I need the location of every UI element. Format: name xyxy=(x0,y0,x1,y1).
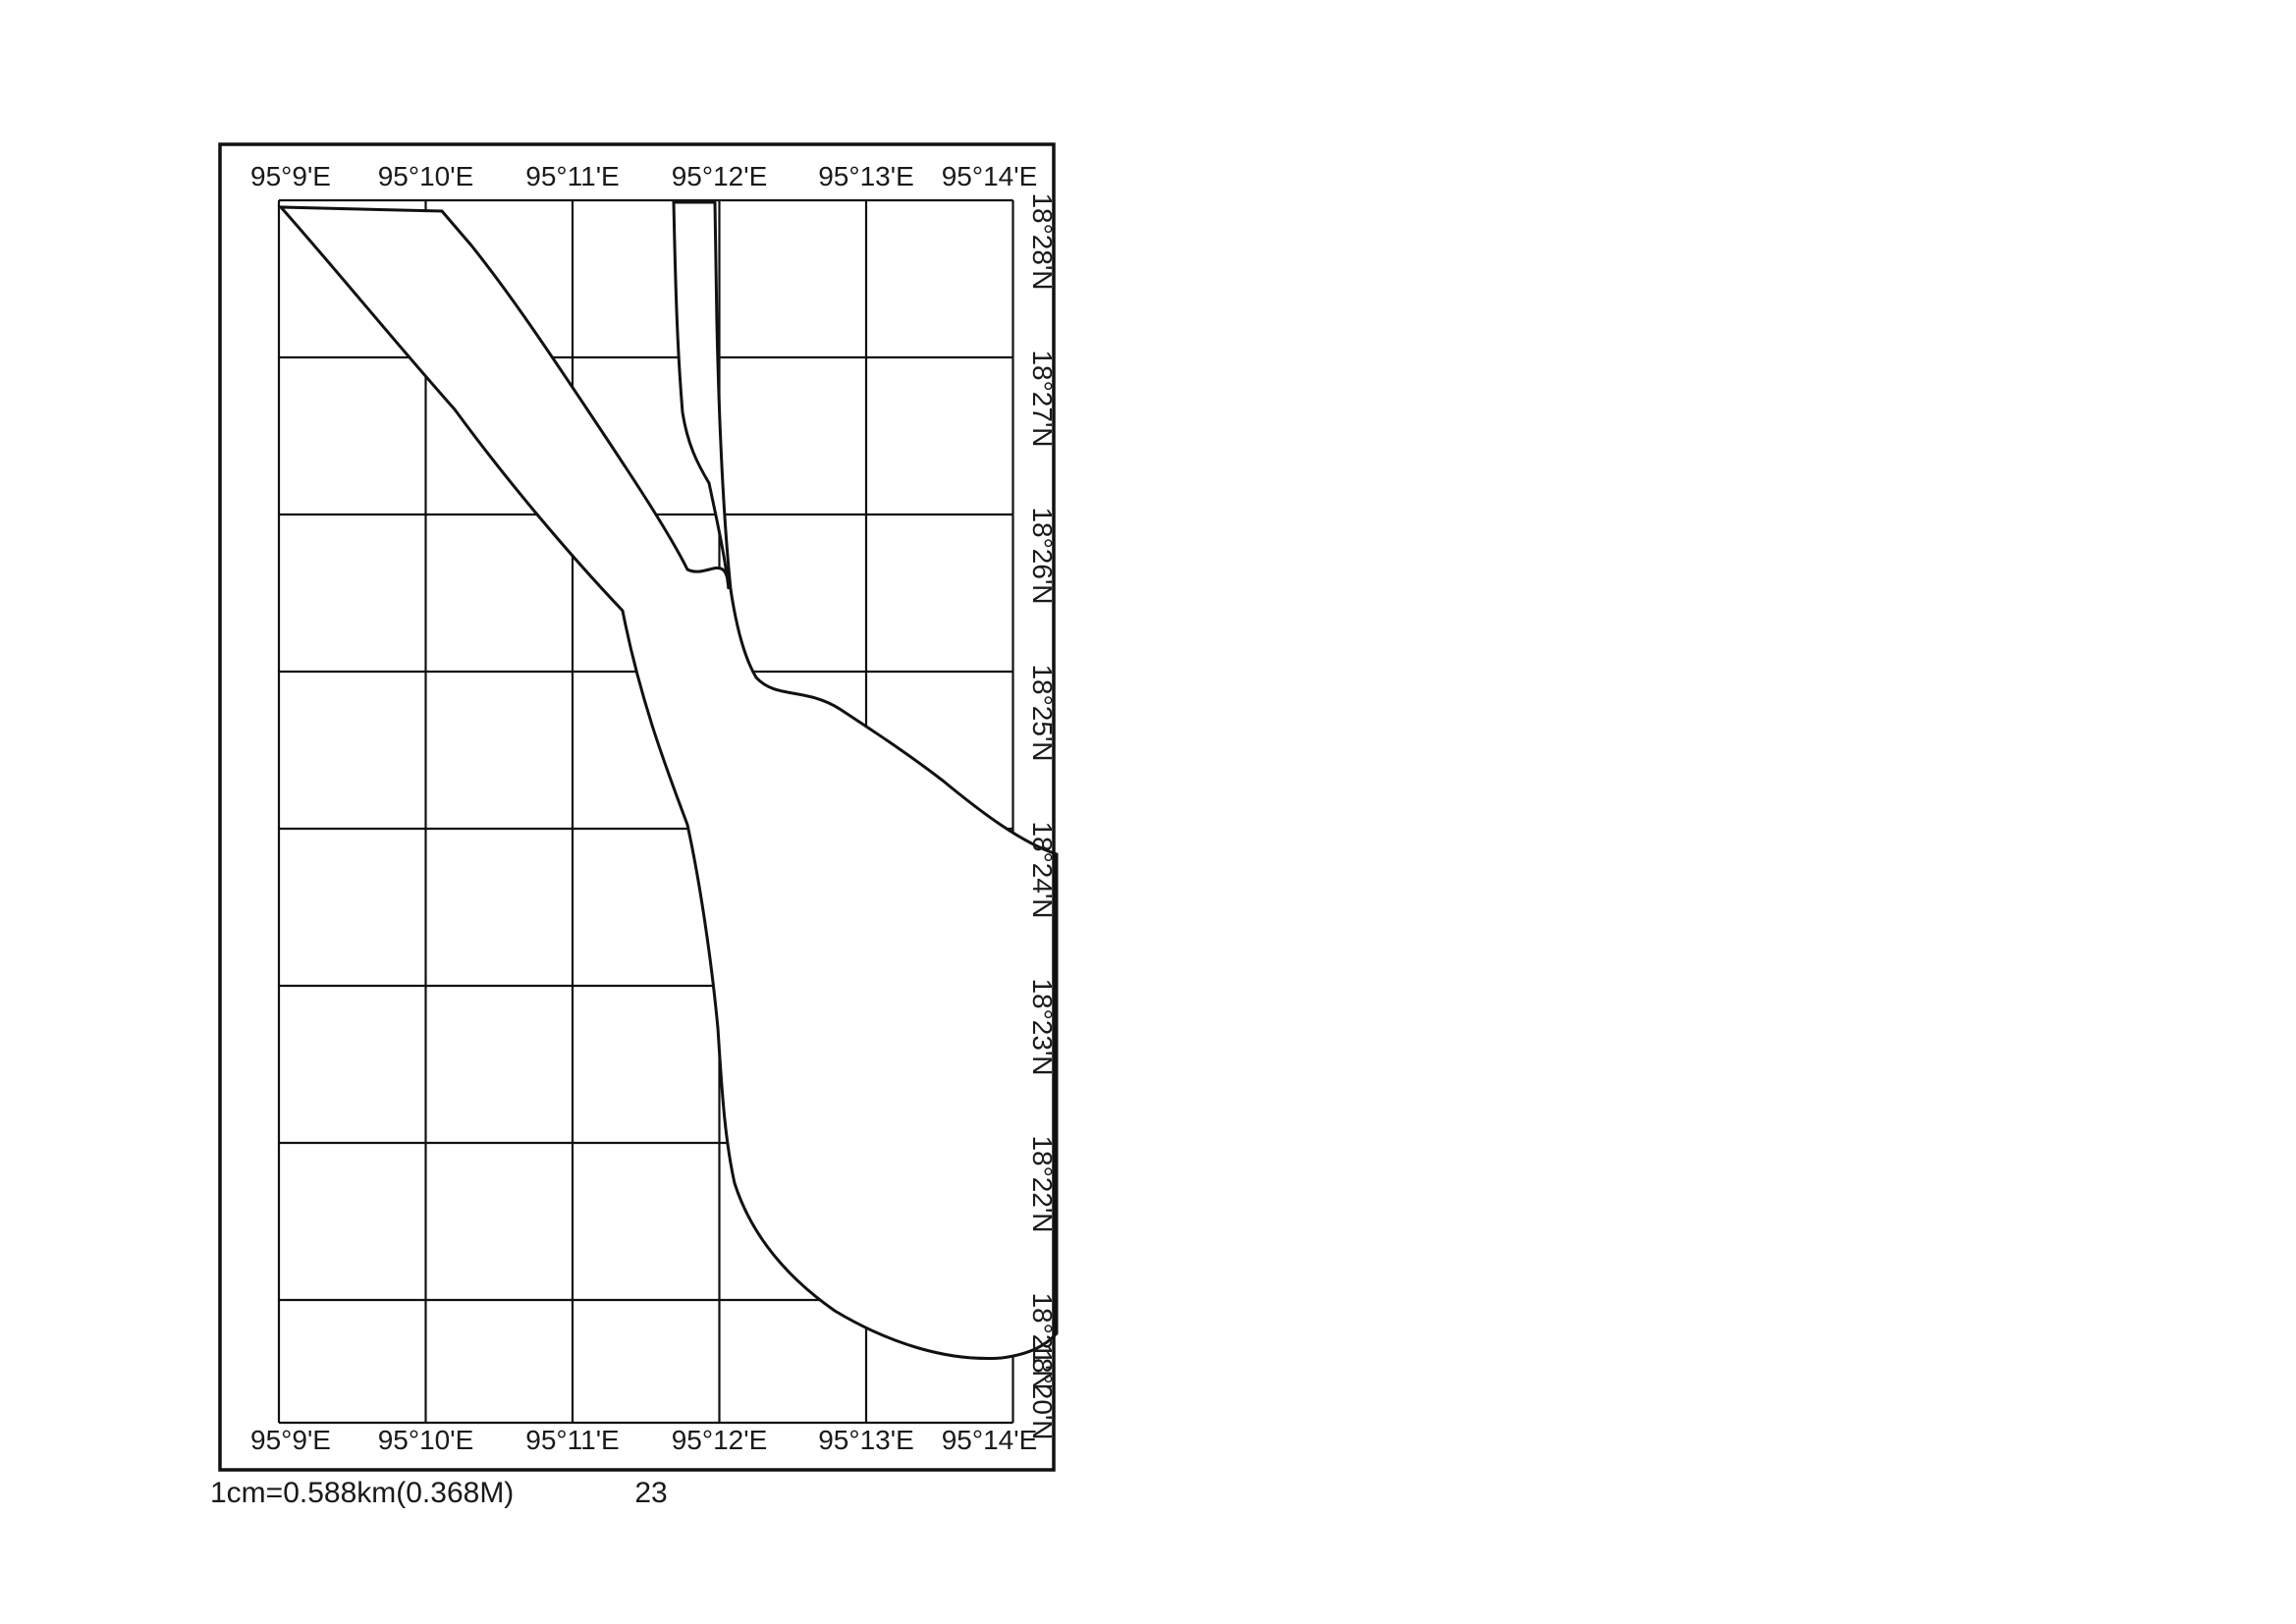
svg-text:18°27'N: 18°27'N xyxy=(1027,350,1058,447)
svg-text:95°10'E: 95°10'E xyxy=(378,1425,474,1455)
svg-text:95°9'E: 95°9'E xyxy=(250,161,331,191)
svg-text:95°13'E: 95°13'E xyxy=(818,1425,914,1455)
svg-text:18°26'N: 18°26'N xyxy=(1027,507,1058,604)
svg-text:95°11'E: 95°11'E xyxy=(525,161,619,191)
svg-text:18°24'N: 18°24'N xyxy=(1027,821,1058,918)
svg-text:1cm=0.588km(0.368M): 1cm=0.588km(0.368M) xyxy=(210,1477,514,1509)
svg-text:23: 23 xyxy=(634,1477,667,1509)
svg-text:95°14'E: 95°14'E xyxy=(942,161,1038,191)
svg-text:95°11'E: 95°11'E xyxy=(525,1425,619,1455)
svg-text:95°14'E: 95°14'E xyxy=(942,1425,1038,1455)
svg-text:18°20'N: 18°20'N xyxy=(1027,1342,1058,1439)
svg-text:95°10'E: 95°10'E xyxy=(378,161,474,191)
svg-text:18°22'N: 18°22'N xyxy=(1027,1135,1058,1232)
svg-text:18°28'N: 18°28'N xyxy=(1027,192,1058,290)
svg-text:95°9'E: 95°9'E xyxy=(250,1425,331,1455)
svg-text:95°12'E: 95°12'E xyxy=(672,161,768,191)
svg-text:18°25'N: 18°25'N xyxy=(1027,664,1058,761)
svg-text:95°13'E: 95°13'E xyxy=(818,161,914,191)
svg-text:95°12'E: 95°12'E xyxy=(672,1425,768,1455)
svg-text:18°23'N: 18°23'N xyxy=(1027,978,1058,1075)
